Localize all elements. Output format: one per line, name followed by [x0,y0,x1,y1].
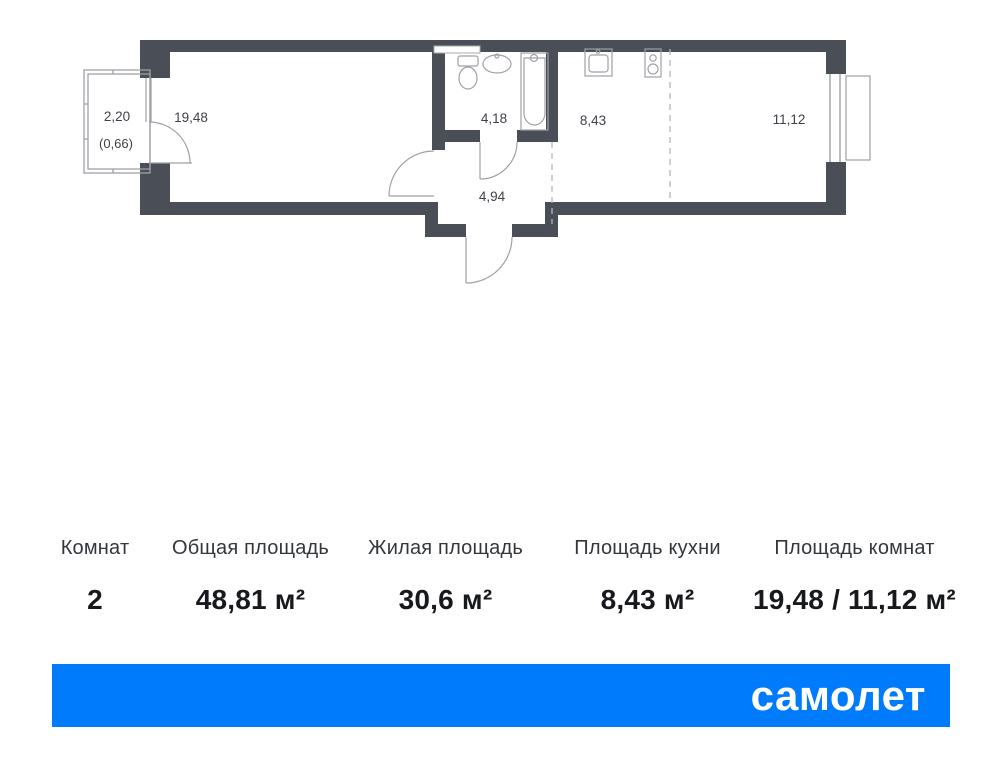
wall-top [140,40,846,52]
wall-bottom-right [548,202,846,215]
wall-bath-bottom-left [432,130,480,142]
bathroom-door-icon [480,142,517,179]
kitchen-area-label: Площадь кухни [550,536,745,560]
living-area-label: Жилая площадь [343,536,548,560]
brand-banner: самолет [52,664,950,727]
hallway-area-label: 4,94 [479,189,506,204]
summary-col-room-areas: Площадь комнат 19,48 / 11,12 м² [742,536,967,616]
bathtub-icon [521,53,548,130]
balcony-reduced-area-label: (0,66) [99,136,133,151]
wall-left-upper [140,40,170,78]
summary-col-total-area: Общая площадь 48,81 м² [168,536,333,616]
kitchen-area-label: 8,43 [580,113,606,128]
sink-icon [483,54,511,73]
floor-plan: 2,20 (0,66) 19,48 4,18 4,94 8,43 11,12 [0,0,1005,500]
summary-col-kitchen-area: Площадь кухни 8,43 м² [550,536,745,616]
wall-right-lower [826,162,846,215]
zone-dividers [552,49,670,224]
total-area-value: 48,81 м² [168,584,333,616]
living-room-area-label: 19,48 [174,110,208,125]
rooms-label: Комнат [15,536,175,560]
room-areas-value: 19,48 / 11,12 м² [742,584,967,616]
toilet-icon [458,56,478,89]
living-area-value: 30,6 м² [343,584,548,616]
apartment-summary: Комнат 2 Общая площадь 48,81 м² Жилая пл… [0,536,1005,646]
bedroom-area-label: 11,12 [773,112,806,127]
summary-col-living-area: Жилая площадь 30,6 м² [343,536,548,616]
wall-hall-bottom-left [425,224,466,237]
balcony-area-label: 2,20 [104,109,130,124]
bathroom-area-label: 4,18 [481,111,507,126]
wall-bottom-left [140,202,437,215]
walls [140,40,846,237]
rooms-value: 2 [15,584,175,616]
samolet-logo: самолет [751,675,926,717]
stove-icon [645,49,661,77]
vent-shaft [434,46,480,53]
kitchen-area-value: 8,43 м² [550,584,745,616]
kitchen-sink-icon [585,49,612,76]
total-area-label: Общая площадь [168,536,333,560]
entrance-door-icon [466,237,512,283]
floorplan-card: 2,20 (0,66) 19,48 4,18 4,94 8,43 11,12 К… [0,0,1005,768]
window-right-icon [830,74,870,162]
summary-col-rooms: Комнат 2 [15,536,175,616]
wall-right-upper [826,40,846,74]
living-door-icon [389,151,434,196]
room-areas-label: Площадь комнат [742,536,967,560]
